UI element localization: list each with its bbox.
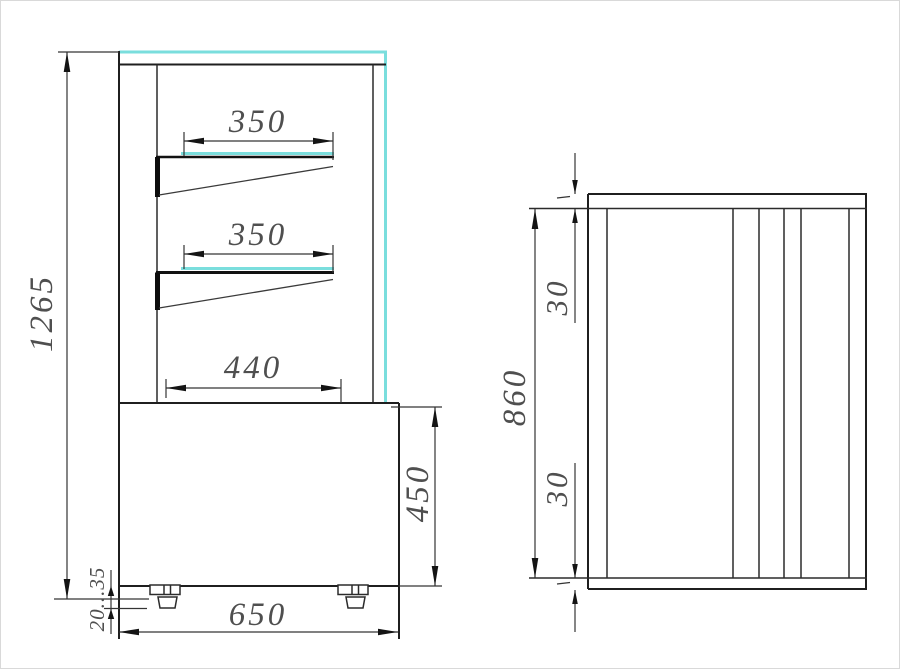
arrow-up-icon bbox=[572, 209, 578, 223]
arrow-up-icon bbox=[532, 209, 539, 229]
side-view: 860 30 30 bbox=[497, 153, 867, 632]
arrow-right-icon bbox=[378, 629, 398, 636]
arrow-left-icon bbox=[119, 629, 139, 636]
dim-height-1265: 1265 bbox=[24, 52, 149, 599]
technical-drawing-canvas: 1265 350 350 440 bbox=[1, 1, 900, 669]
front-view: 1265 350 350 440 bbox=[24, 51, 442, 639]
dim-side-height-860: 860 bbox=[497, 209, 538, 578]
dim-30t-tick bbox=[557, 197, 570, 199]
foot-right-bracket bbox=[338, 585, 368, 595]
arrow-right-icon bbox=[321, 385, 341, 392]
arrow-left-icon bbox=[184, 251, 204, 258]
dim-label-overall-width: 650 bbox=[229, 597, 288, 633]
arrow-up-icon bbox=[572, 590, 578, 604]
arrow-right-icon bbox=[313, 251, 333, 258]
dim-label-middle-shelf: 350 bbox=[228, 217, 288, 253]
arrow-right-icon bbox=[313, 138, 333, 145]
middle-shelf bbox=[156, 269, 334, 311]
foot-left-pad bbox=[158, 597, 177, 608]
dim-middle-shelf-350: 350 bbox=[184, 217, 333, 273]
side-body-outline bbox=[529, 194, 867, 589]
dim-label-height-total: 1265 bbox=[24, 274, 60, 352]
dim-label-bottom-panel: 30 bbox=[539, 470, 574, 508]
dim-label-base-height: 450 bbox=[400, 464, 436, 523]
dim-label-foot-range: 20...35 bbox=[85, 567, 109, 632]
dim-30b-tick bbox=[557, 583, 570, 585]
foot-right bbox=[338, 585, 368, 608]
arrow-up-icon bbox=[432, 407, 439, 427]
upper-shelf bbox=[156, 154, 334, 198]
dim-bottom-panel-30: 30 bbox=[539, 463, 578, 632]
middle-shelf-slope-line bbox=[159, 280, 333, 309]
foot-left-bracket bbox=[150, 585, 180, 595]
arrow-left-icon bbox=[166, 385, 186, 392]
dim-foot-range: 20...35 bbox=[85, 567, 147, 634]
dim-label-top-panel: 30 bbox=[539, 279, 574, 317]
arrow-down-icon bbox=[64, 579, 71, 599]
arrow-down-icon bbox=[572, 180, 578, 194]
foot-right-pad bbox=[346, 597, 365, 608]
foot-left bbox=[150, 585, 180, 608]
arrow-down-icon bbox=[532, 558, 539, 578]
dim-label-side-height: 860 bbox=[497, 368, 533, 427]
dim-lower-shelf-440: 440 bbox=[166, 350, 341, 403]
dim-label-lower-shelf: 440 bbox=[224, 350, 283, 386]
dim-upper-shelf-350: 350 bbox=[184, 104, 333, 160]
arrow-down-icon bbox=[432, 566, 439, 586]
dim-top-panel-30: 30 bbox=[539, 153, 578, 323]
drawing-sheet: 1265 350 350 440 bbox=[0, 0, 900, 669]
upper-shelf-slope-line bbox=[159, 167, 333, 196]
dim-label-upper-shelf: 350 bbox=[228, 104, 288, 140]
arrow-up-icon bbox=[64, 52, 71, 72]
arrow-left-icon bbox=[184, 138, 204, 145]
arrow-down-icon bbox=[572, 564, 578, 578]
